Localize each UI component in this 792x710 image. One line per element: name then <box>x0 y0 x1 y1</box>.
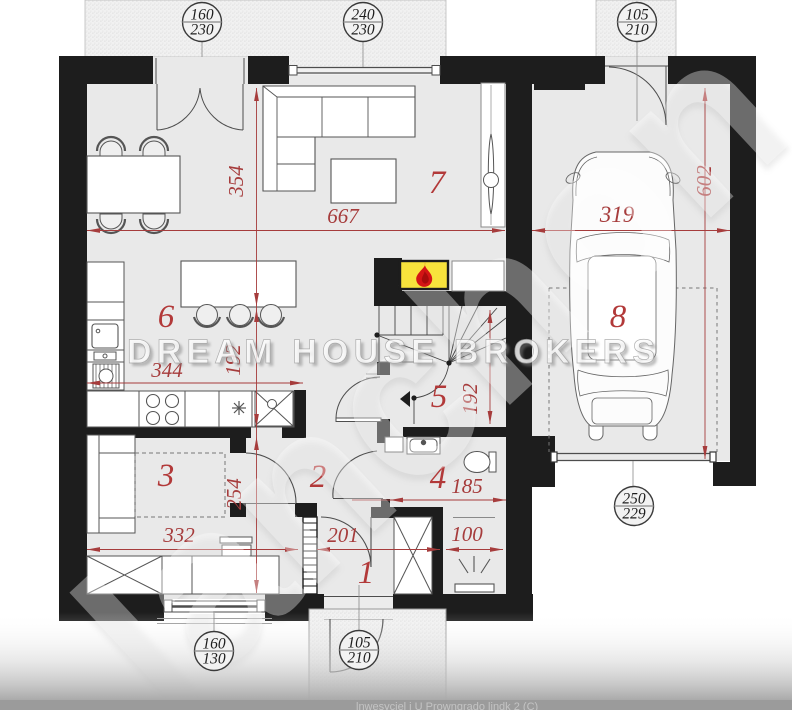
svg-text:DREAM HOUSE BROKERS: DREAM HOUSE BROKERS <box>127 333 660 371</box>
svg-text:210: 210 <box>625 22 649 39</box>
svg-text:210: 210 <box>347 650 371 667</box>
svg-text:130: 130 <box>202 651 226 668</box>
svg-text:6: 6 <box>158 299 175 335</box>
svg-text:667: 667 <box>327 204 360 228</box>
svg-text:100: 100 <box>451 522 483 546</box>
svg-text:230: 230 <box>190 22 214 39</box>
svg-text:229: 229 <box>622 506 646 523</box>
svg-text:230: 230 <box>351 22 375 39</box>
svg-text:354: 354 <box>224 165 248 198</box>
svg-text:lnwesycjel i U Prowngrado lind: lnwesycjel i U Prowngrado lindk 2 (C) <box>356 701 538 710</box>
